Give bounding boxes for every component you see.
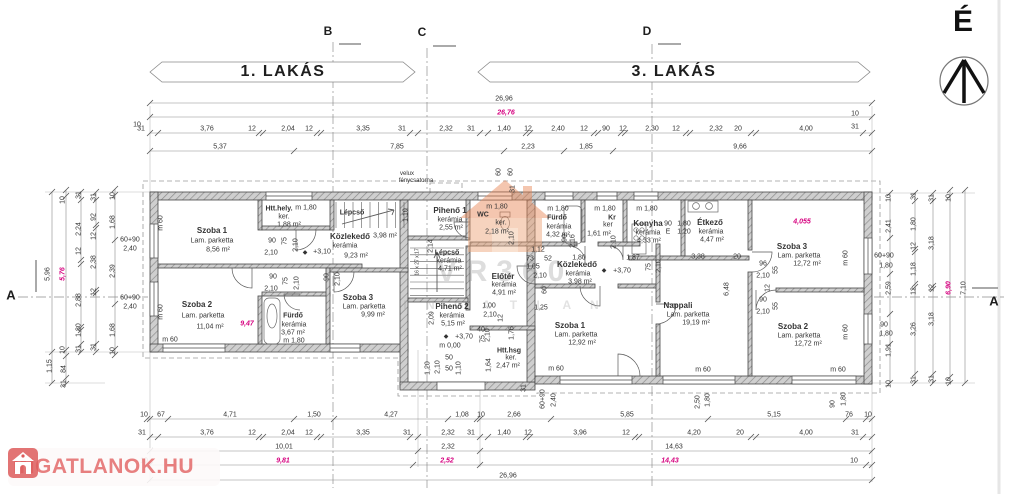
plan-text: m 60 [830, 367, 846, 374]
floorplan-screenshot: VR360 I N G A T L A N 26,9626,7610103131… [0, 0, 1024, 494]
room-name: Fürdő [283, 313, 303, 320]
plan-text: 3,35 [356, 430, 370, 437]
plan-text: 3,18 [929, 236, 936, 250]
plan-text: Lam. parketta [667, 312, 710, 319]
plan-text: 12 [911, 287, 918, 295]
plan-text: 52 [544, 256, 552, 263]
plan-text: 12,92 m² [568, 340, 596, 347]
plan-text: 11,04 m² [196, 324, 223, 331]
plan-text: 26,96 [499, 473, 517, 480]
plan-text: Lam. parketta [778, 253, 821, 260]
plan-text: 90 [759, 297, 767, 304]
room-name: Pihenő 2 [435, 303, 468, 311]
plan-text: 1,50 [307, 412, 321, 419]
plan-text: 2,10 [264, 286, 278, 293]
plan-text: 2,32 [439, 126, 453, 133]
plan-text: 31 [911, 376, 918, 384]
plan-text: 2,10 [294, 276, 301, 290]
plan-text: 12 [911, 242, 918, 250]
plan-text: 3,35 [356, 126, 370, 133]
plan-text: 10 [850, 458, 858, 465]
plan-text: 67 [157, 412, 165, 419]
plan-text: 31 [851, 430, 859, 437]
plan-text: 60+90 [120, 295, 140, 302]
plan-text: 31 [929, 375, 936, 383]
plan-text: 55 [773, 266, 780, 274]
plan-text: 2,38 [91, 255, 98, 269]
room-name: Htt.hsg [497, 348, 521, 355]
plan-text: 2,39 [110, 264, 117, 278]
plan-text: 31 [138, 430, 146, 437]
plan-text: 8,56 m² [206, 247, 230, 254]
plan-text: 14,63 [665, 444, 683, 451]
plan-text: 5,15 [767, 412, 781, 419]
plan-text: 1,00 [482, 303, 496, 310]
plan-text: ◆ [444, 334, 449, 340]
plan-text: 1,80 [705, 393, 712, 407]
ingatlanok-logo: INGATLANOK.HU [8, 448, 220, 486]
plan-text: Lam. parketta [343, 304, 386, 311]
plan-text: 31 [91, 343, 98, 351]
plan-text: 2,32 [709, 126, 723, 133]
plan-text: kerámia [438, 217, 463, 224]
room-name: Konyha [633, 220, 662, 228]
plan-text: 7,85 [390, 144, 404, 151]
plan-text: 12 [622, 430, 630, 437]
room-name: Szoba 3 [343, 294, 373, 302]
plan-text: 6,48 [724, 282, 731, 296]
room-name: Szoba 2 [778, 323, 808, 331]
plan-text: 2,66 [507, 412, 521, 419]
plan-text: 10 [110, 192, 117, 200]
plan-text: ◆ [602, 268, 607, 274]
plan-text: ker [603, 222, 613, 229]
plan-text: 10 [946, 377, 953, 385]
plan-text: 60 [542, 286, 549, 294]
plan-text: 1,15 [47, 359, 54, 373]
plan-text: 31 [403, 430, 411, 437]
plan-text: 10 [477, 412, 485, 419]
plan-text: 90 [880, 322, 888, 329]
plan-text: 1,18 [911, 262, 918, 276]
plan-text: 3,38 [691, 254, 705, 261]
plan-text: 90 [268, 238, 276, 245]
plan-text: 12,72 m² [793, 261, 821, 268]
plan-text: 12 [76, 247, 83, 255]
plan-text: m 60 [162, 337, 178, 344]
plan-text: 3,76 [200, 126, 214, 133]
plan-text: 90 [269, 274, 277, 281]
plan-text: 1,61 m² [587, 231, 611, 238]
plan-text: 31 [911, 192, 918, 200]
plan-text: 2,40 [123, 304, 137, 311]
plan-text: 2,30 [645, 126, 659, 133]
plan-text: 4,055 [793, 219, 811, 226]
plan-text: 12,72 m² [794, 341, 822, 348]
plan-text: 2,32 [441, 430, 455, 437]
plan-text: 2,10 [335, 272, 342, 286]
plan-text: 1,10 [403, 208, 410, 222]
plan-text: 26,76 [497, 110, 515, 117]
plan-text: 92 [91, 213, 98, 221]
section-label-a-left: A [6, 288, 15, 303]
plan-text: ker. [495, 220, 506, 227]
plan-text: 50 [445, 355, 453, 362]
room-name: Közlekedő [557, 261, 597, 269]
grid-label-c: C [418, 25, 427, 39]
apartment-3-title: 3. LAKÁS [632, 63, 717, 81]
plan-text: E [666, 229, 671, 236]
plan-text: 5,96 [45, 267, 52, 281]
room-name: Szoba 3 [777, 243, 807, 251]
room-name: Pihenő 1 [433, 207, 466, 215]
plan-text: 1,20 [677, 229, 691, 236]
plan-text: 90 [664, 221, 672, 228]
plan-text: 2,10 [756, 309, 770, 316]
plan-text: 1,80 [841, 392, 848, 406]
plan-text: fénycsatorna [399, 178, 433, 184]
plan-text: 10 [886, 194, 893, 202]
plan-text: 1,68 [110, 215, 117, 229]
plan-text: 90 [324, 273, 331, 281]
plan-text: 2,10 [611, 235, 618, 249]
plan-text: m 1,80 [283, 338, 304, 345]
plan-text: 1,87 [626, 255, 640, 262]
plan-text: 2,41 [886, 219, 893, 233]
plan-text: 31 [137, 126, 145, 133]
plan-text: 2,10 [656, 259, 663, 273]
elevation-mark: +3,10 [313, 249, 331, 256]
plan-text: 12 [929, 284, 936, 292]
plan-text: 9,81 [276, 458, 290, 465]
grid-label-d: D [643, 24, 652, 38]
elevation-mark: +3,70 [455, 334, 473, 341]
plan-text: ker. [278, 214, 289, 221]
plan-text: 1,88 m² [277, 222, 301, 229]
plan-text: 75 [283, 277, 290, 285]
plan-text: 1,08 [455, 412, 469, 419]
plan-text: 2,09 [429, 311, 436, 325]
plan-text: 1,40 [497, 430, 511, 437]
plan-text: Lam. parketta [182, 313, 225, 320]
plan-text: 60+90 [874, 253, 894, 260]
plan-text: 5,37 [213, 144, 227, 151]
plan-text: 31 [91, 193, 98, 201]
plan-text: 4,00 [799, 430, 813, 437]
plan-text: 90 [602, 126, 610, 133]
grid-label-b: B [324, 24, 333, 38]
plan-text: 75 [646, 263, 653, 271]
plan-text: 1,91 [886, 343, 893, 357]
plan-text: 31 [467, 126, 475, 133]
plan-text: 2,04 [281, 430, 295, 437]
plan-text: 90 [830, 400, 837, 408]
logo-house-icon [8, 448, 38, 478]
plan-text: 4,47 m² [700, 237, 724, 244]
plan-text: 10 [851, 111, 859, 118]
plan-text: 2,40 [551, 126, 565, 133]
plan-text: m 60 [548, 366, 564, 373]
floor-plan-drawing [0, 0, 1024, 494]
plan-text: 12 [498, 314, 505, 322]
room-name: Kr [608, 215, 616, 222]
plan-text: 1,76 [509, 326, 516, 340]
plan-text: 31 [61, 380, 68, 388]
plan-text: kerámia [566, 271, 591, 278]
plan-text: 12 [305, 430, 313, 437]
plan-text: 14,43 [661, 458, 679, 465]
plan-text: 3,96 [573, 430, 587, 437]
plan-text: 5,76 [60, 267, 67, 281]
plan-text: 1,80 [572, 255, 586, 262]
plan-text: 2,59 [886, 281, 893, 295]
logo-text: INGATLANOK.HU [13, 455, 194, 479]
plan-text: 20 [736, 430, 744, 437]
plan-text: 3,26 [911, 322, 918, 336]
plan-text: 1,64 [486, 358, 493, 372]
plan-text: 12 [91, 232, 98, 240]
plan-text: m 1,80 [636, 206, 657, 213]
plan-text: 2,16 [570, 234, 577, 248]
plan-text: 10 [110, 347, 117, 355]
plan-text: 84 [61, 365, 68, 373]
room-name: WC [477, 212, 489, 219]
plan-text: 31 [510, 185, 517, 193]
plan-text: 31 [467, 430, 475, 437]
plan-text: 20 [733, 254, 741, 261]
plan-text: kerámia [440, 313, 465, 320]
plan-text: 31 [929, 194, 936, 202]
room-name: Lépcső [340, 210, 365, 217]
plan-text: 50 [445, 366, 453, 373]
room-name: Nappali [664, 302, 693, 310]
plan-text: 12 [672, 126, 680, 133]
plan-text: 9,66 [733, 144, 747, 151]
plan-text: 2,10 [533, 273, 547, 280]
plan-text: 1,80 [677, 221, 691, 228]
plan-text: 12 [248, 430, 256, 437]
plan-text: 26,96 [495, 96, 513, 103]
plan-text: 5,15 m² [441, 321, 465, 328]
plan-text: 12 [580, 126, 588, 133]
plan-text: 60+90 [540, 389, 547, 409]
plan-text: 4,33 m² [637, 238, 661, 245]
plan-text: 31 [76, 191, 83, 199]
plan-text: 2,10 [509, 231, 516, 245]
plan-text: 2,52 [440, 458, 454, 465]
plan-text: 12 [305, 126, 313, 133]
plan-text: 1,80 [911, 217, 918, 231]
plan-text: ◆ [303, 250, 308, 256]
plan-text: 60 [496, 168, 503, 176]
plan-text: 10 [60, 196, 67, 204]
plan-text: 90 [562, 234, 569, 242]
plan-text: m 60 [843, 324, 850, 340]
plan-text: 1,80 [879, 331, 893, 338]
plan-text: 2,10 [293, 238, 300, 252]
room-name: Lépcső [435, 250, 460, 257]
plan-text: m 60 [843, 250, 850, 266]
room-name: Előtér [492, 273, 515, 281]
plan-text: 1,20 [425, 361, 432, 375]
plan-text: kerámia [333, 243, 358, 250]
plan-text: 4,71 m² [438, 266, 462, 273]
plan-text: 4,00 [799, 126, 813, 133]
plan-text: 12 [765, 284, 772, 292]
plan-text: 1,40 [497, 126, 511, 133]
plan-text: 12 [248, 126, 256, 133]
plan-text: m 1,80 [547, 206, 568, 213]
plan-text: 4,27 [384, 412, 398, 419]
plan-text: 1,12 [531, 247, 545, 254]
plan-text: kerámia [699, 229, 724, 236]
plan-text: m 0,00 [439, 343, 460, 350]
plan-text: 16 x 27 x 17 [416, 248, 421, 275]
plan-text: 12 [619, 126, 627, 133]
plan-text: 2,50 [695, 395, 702, 409]
plan-text: 2,04 [281, 126, 295, 133]
plan-text: kerámia [437, 258, 462, 265]
plan-text: 10 [886, 380, 893, 388]
plan-text: m 60 [158, 215, 165, 231]
plan-text: 2,18 m² [485, 229, 509, 236]
section-label-a-right: A [989, 294, 998, 309]
plan-text: 10 [864, 412, 872, 419]
plan-text: 19,19 m² [682, 320, 710, 327]
plan-text: 7,10 [961, 281, 968, 295]
plan-text: 9,99 m² [361, 312, 385, 319]
plan-text: m 60 [695, 367, 711, 374]
room-name: Szoba 2 [182, 301, 212, 309]
plan-text: 75 [282, 237, 289, 245]
plan-text: 73 [526, 256, 534, 263]
plan-text: 12 [524, 126, 532, 133]
plan-text: 10 [140, 412, 148, 419]
room-name: Htt.hely. [265, 206, 292, 213]
plan-text: m 1,80 [594, 206, 615, 213]
elevation-mark: +3,70 [613, 268, 631, 275]
apartment-1-title: 1. LAKÁS [241, 63, 326, 81]
plan-text: velux [400, 171, 414, 177]
plan-text: 12 [91, 288, 98, 296]
plan-text: 1,85 [579, 144, 593, 151]
plan-text: 12 [524, 430, 532, 437]
plan-text: 6,90 [946, 281, 953, 295]
plan-text: ker. [505, 355, 516, 362]
room-name: Szoba 1 [197, 227, 227, 235]
plan-text: 2,10 [485, 328, 492, 342]
plan-text: 9,47 [240, 321, 254, 328]
plan-text: 5,85 [620, 412, 634, 419]
plan-text: 2,14 [428, 239, 435, 253]
plan-text: 2,10 [435, 360, 442, 374]
plan-text: 4,20 [687, 430, 701, 437]
plan-text: 3,67 m² [281, 330, 305, 337]
plan-text: 3,98 m² [568, 279, 592, 286]
plan-text: Lam. parketta [555, 332, 598, 339]
plan-text: 55 [773, 302, 780, 310]
plan-text: 76 [845, 412, 853, 419]
room-name: Étkező [697, 219, 723, 227]
plan-text: 1,68 [110, 323, 117, 337]
plan-text: 2,40 [123, 246, 137, 253]
plan-text: 1,05 [526, 264, 540, 271]
plan-text: 60+90 [120, 237, 140, 244]
plan-text: 4,91 m² [492, 290, 516, 297]
plan-text: kerámia [636, 230, 661, 237]
plan-text: 2,24 [76, 222, 83, 236]
plan-text: 2,23 [521, 144, 535, 151]
room-name: Közlekedő [330, 233, 370, 241]
plan-text: 10 [946, 194, 953, 202]
plan-text: 2,55 m² [439, 225, 463, 232]
plan-text: 3,76 [200, 430, 214, 437]
plan-text: 1,80 [76, 323, 83, 337]
north-letter: É [953, 5, 973, 39]
plan-text: 2,40 [551, 393, 558, 407]
plan-text: 2,10 [756, 273, 770, 280]
plan-text: kerámia [547, 224, 572, 231]
plan-text: m 60 [158, 304, 165, 320]
plan-text: 3,98 m² [373, 233, 397, 240]
plan-text: 4,71 [223, 412, 237, 419]
plan-text: 3,18 [929, 312, 936, 326]
plan-text: 10 [60, 346, 67, 354]
plan-text: 2,32 [441, 444, 455, 451]
plan-text: Lam. parketta [191, 238, 234, 245]
plan-text: 2,10 [483, 312, 497, 319]
plan-text: 1,80 [879, 263, 893, 270]
plan-text: 96 [759, 261, 767, 268]
plan-text: m 1,80 [295, 205, 316, 212]
plan-text: 2,88 [76, 293, 83, 307]
room-name: Szoba 1 [555, 322, 585, 330]
plan-text: 2,10 [264, 250, 278, 257]
plan-text: 60 [508, 168, 515, 176]
plan-text: 2,47 m² [496, 363, 520, 370]
plan-text: kerámia [492, 282, 517, 289]
plan-text: 1,25 [534, 305, 548, 312]
room-name: Fürdő [547, 215, 567, 222]
plan-text: kerámia [282, 322, 307, 329]
plan-text: 1,10 [456, 361, 463, 375]
plan-text: 31 [76, 345, 83, 353]
plan-text: m 1,80 [486, 204, 507, 211]
plan-text: 20 [734, 126, 742, 133]
plan-text: 31 [398, 126, 406, 133]
plan-text: 10,01 [275, 444, 293, 451]
plan-text: 31 [521, 384, 528, 392]
plan-text: Lam. parketta [778, 333, 821, 340]
plan-text: 31 [851, 124, 859, 131]
north-arrow [940, 57, 988, 105]
plan-text: 9,23 m² [344, 253, 368, 260]
